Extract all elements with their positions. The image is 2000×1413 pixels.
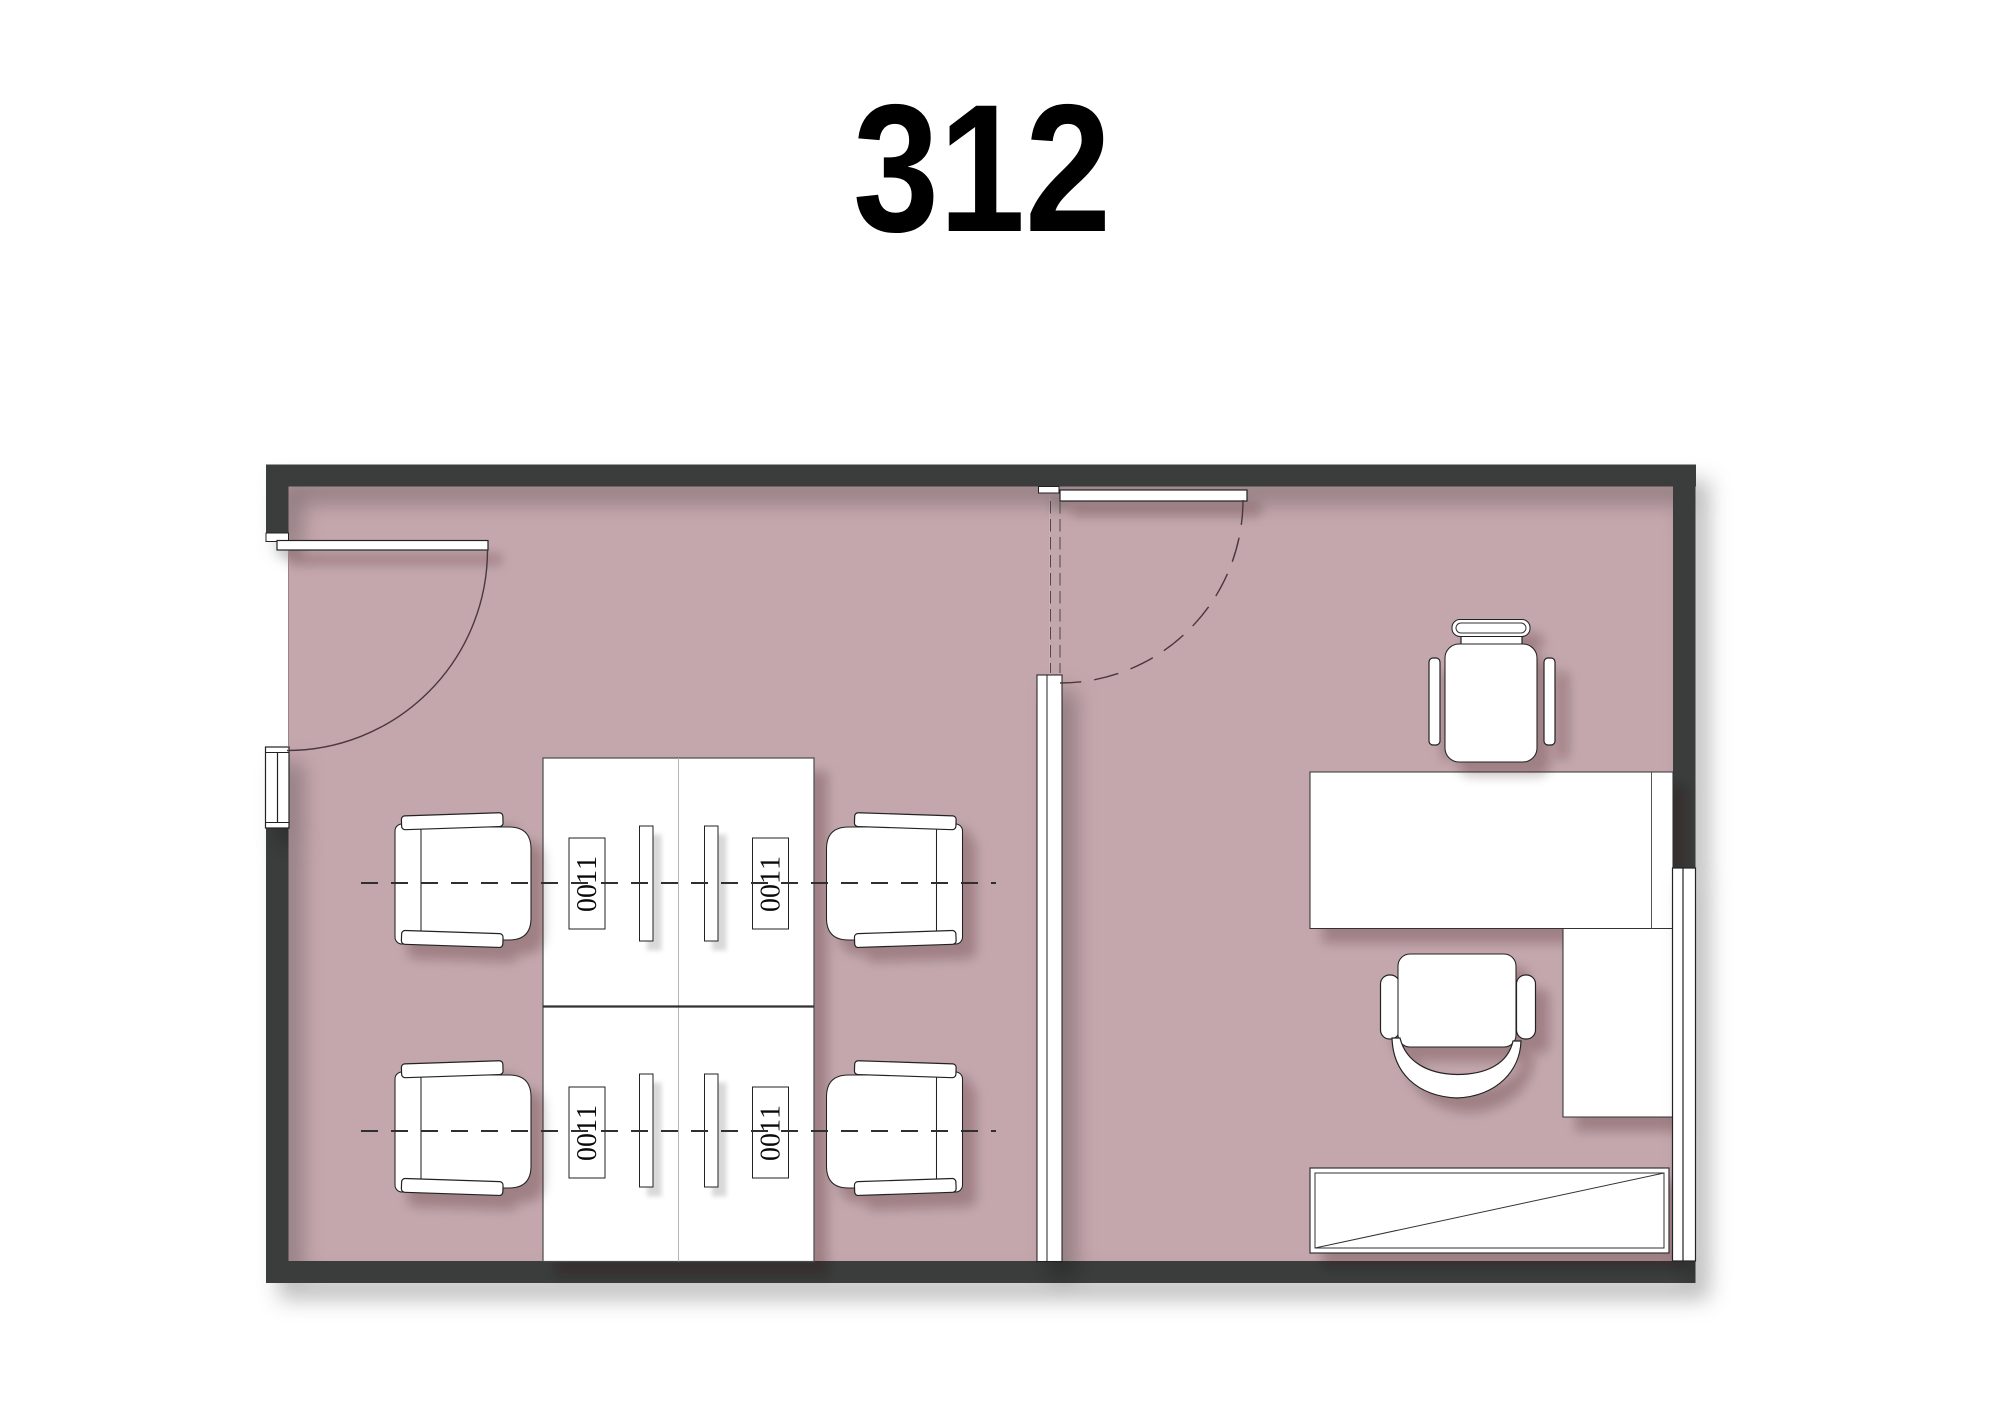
svg-text:312: 312	[853, 66, 1111, 270]
svg-text:0: 0	[756, 1147, 787, 1161]
svg-text:1: 1	[756, 1105, 787, 1119]
svg-text:0: 0	[572, 1133, 603, 1147]
svg-text:0: 0	[756, 1133, 787, 1147]
svg-text:0: 0	[756, 884, 787, 898]
svg-text:0: 0	[756, 898, 787, 912]
svg-text:0: 0	[572, 1147, 603, 1161]
svg-text:1: 1	[756, 870, 787, 884]
svg-text:0: 0	[572, 898, 603, 912]
svg-text:1: 1	[572, 856, 603, 870]
svg-text:0: 0	[572, 884, 603, 898]
svg-text:1: 1	[572, 1105, 603, 1119]
svg-text:1: 1	[572, 870, 603, 884]
svg-text:1: 1	[756, 856, 787, 870]
